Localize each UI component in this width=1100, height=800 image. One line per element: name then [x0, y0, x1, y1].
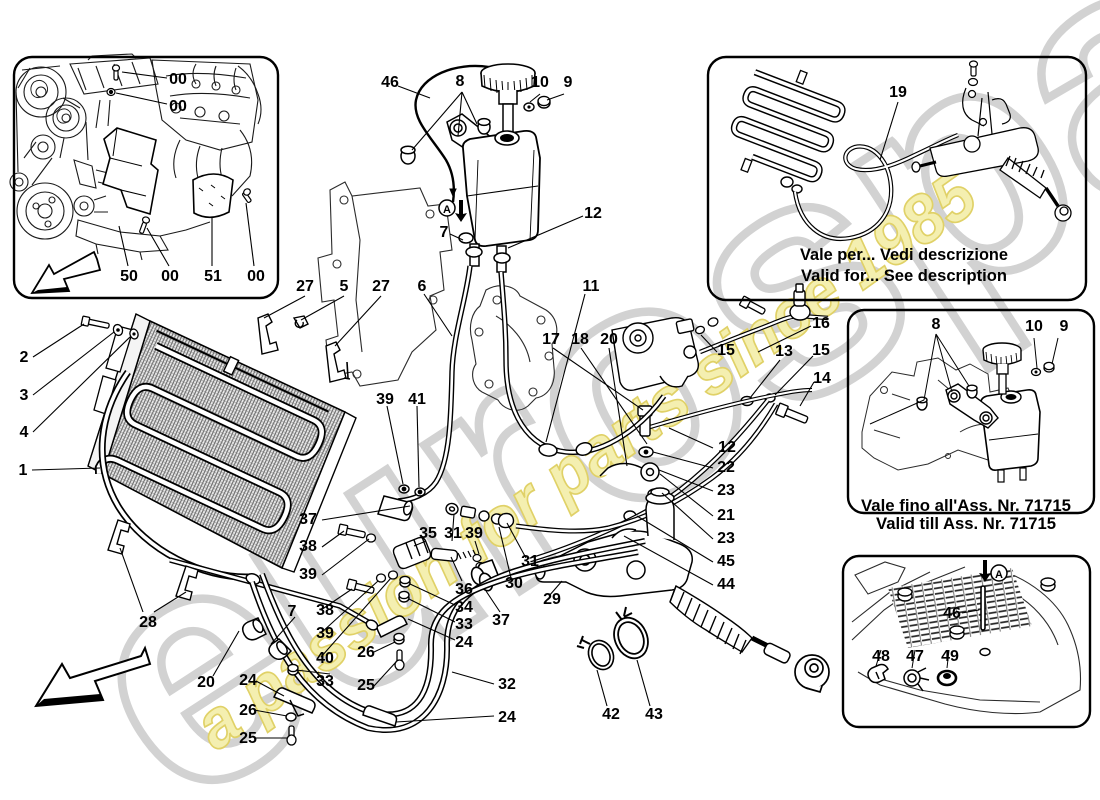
svg-text:27: 27	[296, 278, 314, 295]
svg-text:10: 10	[531, 74, 549, 91]
svg-text:00: 00	[169, 71, 187, 88]
svg-text:27: 27	[372, 278, 390, 295]
svg-text:35: 35	[419, 525, 437, 542]
svg-text:31: 31	[444, 525, 462, 542]
svg-text:12: 12	[584, 205, 602, 222]
svg-text:15: 15	[717, 342, 735, 359]
svg-text:39: 39	[376, 391, 394, 408]
svg-text:28: 28	[139, 614, 157, 631]
svg-text:33: 33	[316, 673, 334, 690]
svg-text:39: 39	[316, 625, 334, 642]
svg-text:48: 48	[872, 648, 890, 665]
svg-text:2: 2	[20, 349, 29, 366]
svg-text:38: 38	[299, 538, 317, 555]
svg-text:36: 36	[455, 581, 473, 598]
svg-text:24: 24	[239, 672, 257, 689]
svg-text:31: 31	[521, 553, 539, 570]
svg-text:41: 41	[408, 391, 426, 408]
svg-text:4: 4	[20, 424, 29, 441]
svg-text:23: 23	[717, 482, 735, 499]
svg-text:26: 26	[357, 644, 375, 661]
svg-text:7: 7	[288, 603, 297, 620]
svg-text:34: 34	[455, 599, 473, 616]
svg-text:A: A	[995, 569, 1003, 581]
svg-text:37: 37	[492, 612, 510, 629]
svg-text:20: 20	[600, 331, 618, 348]
svg-text:16: 16	[812, 315, 830, 332]
svg-text:19: 19	[889, 84, 907, 101]
svg-text:49: 49	[941, 648, 959, 665]
svg-text:26: 26	[239, 702, 257, 719]
svg-text:20: 20	[197, 674, 215, 691]
svg-text:25: 25	[357, 677, 375, 694]
svg-text:45: 45	[717, 553, 735, 570]
svg-text:A: A	[443, 204, 451, 216]
svg-text:38: 38	[316, 602, 334, 619]
svg-text:14: 14	[813, 370, 831, 387]
svg-text:33: 33	[455, 616, 473, 633]
svg-text:8: 8	[932, 316, 941, 333]
svg-text:37: 37	[299, 511, 317, 528]
svg-text:46: 46	[381, 74, 399, 91]
svg-text:17: 17	[542, 331, 560, 348]
svg-text:00: 00	[169, 98, 187, 115]
svg-text:5: 5	[340, 278, 349, 295]
svg-text:32: 32	[498, 676, 516, 693]
svg-text:1: 1	[19, 462, 28, 479]
svg-text:51: 51	[204, 268, 222, 285]
svg-text:21: 21	[717, 507, 735, 524]
svg-text:15: 15	[812, 342, 830, 359]
svg-text:6: 6	[418, 278, 427, 295]
svg-text:25: 25	[239, 730, 257, 747]
svg-text:39: 39	[299, 566, 317, 583]
svg-text:24: 24	[455, 634, 473, 651]
svg-text:Valid till Ass. Nr. 71715: Valid till Ass. Nr. 71715	[876, 514, 1056, 533]
svg-text:13: 13	[775, 343, 793, 360]
svg-text:00: 00	[247, 268, 265, 285]
svg-text:23: 23	[717, 530, 735, 547]
svg-text:46: 46	[943, 605, 961, 622]
svg-text:47: 47	[906, 648, 924, 665]
svg-text:40: 40	[316, 650, 334, 667]
svg-text:24: 24	[498, 709, 516, 726]
svg-text:Valid for... See description: Valid for... See description	[801, 266, 1007, 285]
svg-text:Vale fino all'Ass. Nr. 71715: Vale fino all'Ass. Nr. 71715	[861, 496, 1071, 515]
svg-text:29: 29	[543, 591, 561, 608]
svg-text:18: 18	[571, 331, 589, 348]
svg-text:8: 8	[456, 73, 465, 90]
svg-text:3: 3	[20, 387, 29, 404]
svg-text:7: 7	[440, 224, 449, 241]
svg-text:10: 10	[1025, 318, 1043, 335]
svg-text:30: 30	[505, 575, 523, 592]
svg-text:50: 50	[120, 268, 138, 285]
svg-text:44: 44	[717, 576, 735, 593]
svg-text:12: 12	[718, 439, 736, 456]
svg-text:00: 00	[161, 268, 179, 285]
svg-text:39: 39	[465, 525, 483, 542]
svg-text:9: 9	[1060, 318, 1069, 335]
svg-text:Vale per... Vedi descrizione: Vale per... Vedi descrizione	[800, 245, 1008, 264]
svg-text:9: 9	[564, 74, 573, 91]
svg-text:22: 22	[717, 459, 735, 476]
svg-text:11: 11	[583, 278, 600, 295]
svg-text:43: 43	[645, 706, 663, 723]
svg-text:42: 42	[602, 706, 620, 723]
